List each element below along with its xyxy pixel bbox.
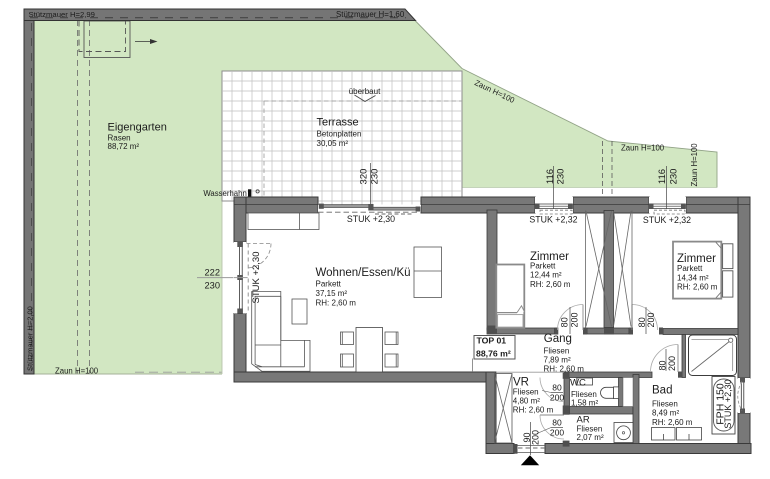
svg-text:TOP 01: TOP 01 [477,335,507,345]
svg-text:80: 80 [552,418,562,428]
svg-text:Stützmauer H=1,60: Stützmauer H=1,60 [336,10,405,19]
svg-text:Parkett: Parkett [316,280,342,289]
svg-text:überbaut: überbaut [349,87,381,96]
svg-text:1,58 m²: 1,58 m² [571,399,598,408]
svg-text:116: 116 [657,169,668,184]
svg-text:12,44 m²: 12,44 m² [530,271,562,280]
svg-text:STUK +2,30: STUK +2,30 [251,251,262,303]
svg-text:STUK +2,30: STUK +2,30 [347,214,395,224]
svg-text:200: 200 [667,356,677,371]
svg-text:WC: WC [570,378,586,389]
svg-text:Bad: Bad [652,385,672,397]
svg-text:80: 80 [657,360,667,370]
svg-text:30,05 m²: 30,05 m² [317,139,349,148]
svg-text:Zaun H=100: Zaun H=100 [621,144,665,153]
svg-text:116: 116 [545,169,556,184]
svg-text:RH: 2,60 m: RH: 2,60 m [652,418,693,427]
svg-text:200: 200 [646,312,656,327]
svg-text:222: 222 [204,267,220,277]
svg-text:Fliesen: Fliesen [544,347,570,356]
svg-text:Stützmauer H=2,00: Stützmauer H=2,00 [26,306,35,371]
svg-text:RH: 2,60 m: RH: 2,60 m [677,283,718,292]
svg-text:Zaun H=100: Zaun H=100 [690,143,699,187]
svg-text:200: 200 [550,393,564,403]
svg-text:320: 320 [358,169,369,185]
svg-text:Eigengarten: Eigengarten [108,122,167,134]
svg-text:RH: 2,60 m: RH: 2,60 m [530,280,571,289]
svg-text:37,15 m²: 37,15 m² [316,289,348,298]
svg-text:Zaun H=100: Zaun H=100 [55,366,99,375]
svg-text:200: 200 [550,428,564,438]
svg-text:230: 230 [669,169,680,185]
svg-text:230: 230 [369,169,380,185]
svg-text:RH: 2,60 m: RH: 2,60 m [316,299,357,308]
svg-text:Rasen: Rasen [108,133,131,142]
svg-text:8,49 m²: 8,49 m² [652,409,679,418]
svg-text:Terrasse: Terrasse [317,117,359,129]
svg-text:200: 200 [531,430,541,445]
svg-text:14,34 m²: 14,34 m² [677,274,709,283]
svg-text:230: 230 [204,280,220,290]
svg-text:7,89 m²: 7,89 m² [544,356,571,365]
svg-text:Parkett: Parkett [530,262,556,271]
svg-text:Stützmauer H=2,99: Stützmauer H=2,99 [29,10,95,19]
svg-text:80: 80 [552,383,562,393]
svg-text:STUK +2,32: STUK +2,32 [643,215,691,225]
svg-text:STUK +2,32: STUK +2,32 [529,215,577,225]
svg-text:STUK +2,30: STUK +2,30 [723,379,733,428]
svg-text:2,07 m²: 2,07 m² [577,433,604,442]
svg-text:Wohnen/Essen/Kü: Wohnen/Essen/Kü [316,267,411,279]
svg-text:RH: 2,60 m: RH: 2,60 m [544,365,585,374]
svg-text:Gang: Gang [544,333,572,345]
svg-text:RH: 2,60 m: RH: 2,60 m [513,406,554,415]
svg-text:Betonplatten: Betonplatten [317,129,362,138]
svg-text:Parkett: Parkett [677,264,703,273]
svg-text:Fliesen: Fliesen [513,388,539,397]
svg-text:4,80 m²: 4,80 m² [513,397,540,406]
svg-text:230: 230 [556,169,567,185]
svg-text:88,76 m²: 88,76 m² [476,348,511,358]
svg-text:200: 200 [569,312,579,327]
svg-text:80: 80 [560,317,570,327]
svg-text:Fliesen: Fliesen [652,400,678,409]
svg-text:88,72 m²: 88,72 m² [108,142,140,151]
